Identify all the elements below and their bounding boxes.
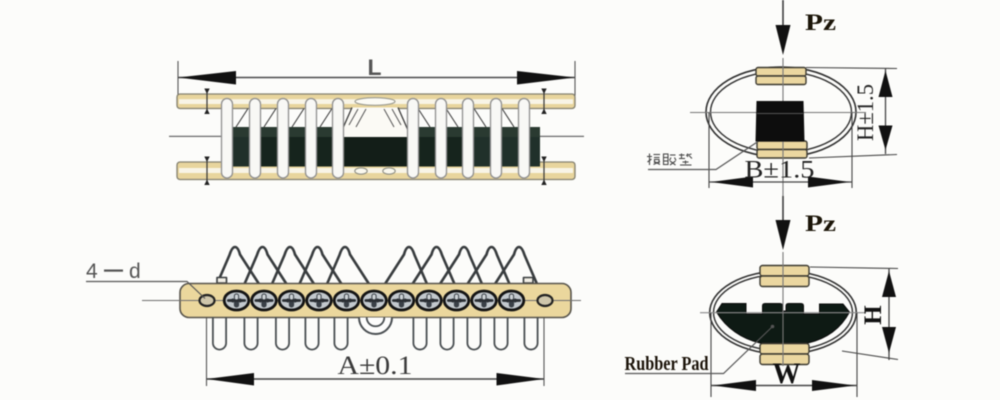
svg-text:Pz: Pz bbox=[805, 211, 836, 236]
svg-text:A±0.1: A±0.1 bbox=[338, 351, 413, 380]
svg-text:B±1.5: B±1.5 bbox=[745, 155, 815, 184]
svg-text:Rubber Pad: Rubber Pad bbox=[625, 353, 709, 375]
svg-text:W: W bbox=[773, 357, 801, 390]
svg-text:d: d bbox=[129, 260, 141, 283]
svg-text:4: 4 bbox=[86, 260, 98, 283]
svg-text:H: H bbox=[860, 305, 887, 325]
svg-text:L: L bbox=[368, 55, 382, 80]
svg-text:H±1.5: H±1.5 bbox=[853, 84, 878, 141]
svg-text:Pz: Pz bbox=[805, 10, 836, 35]
